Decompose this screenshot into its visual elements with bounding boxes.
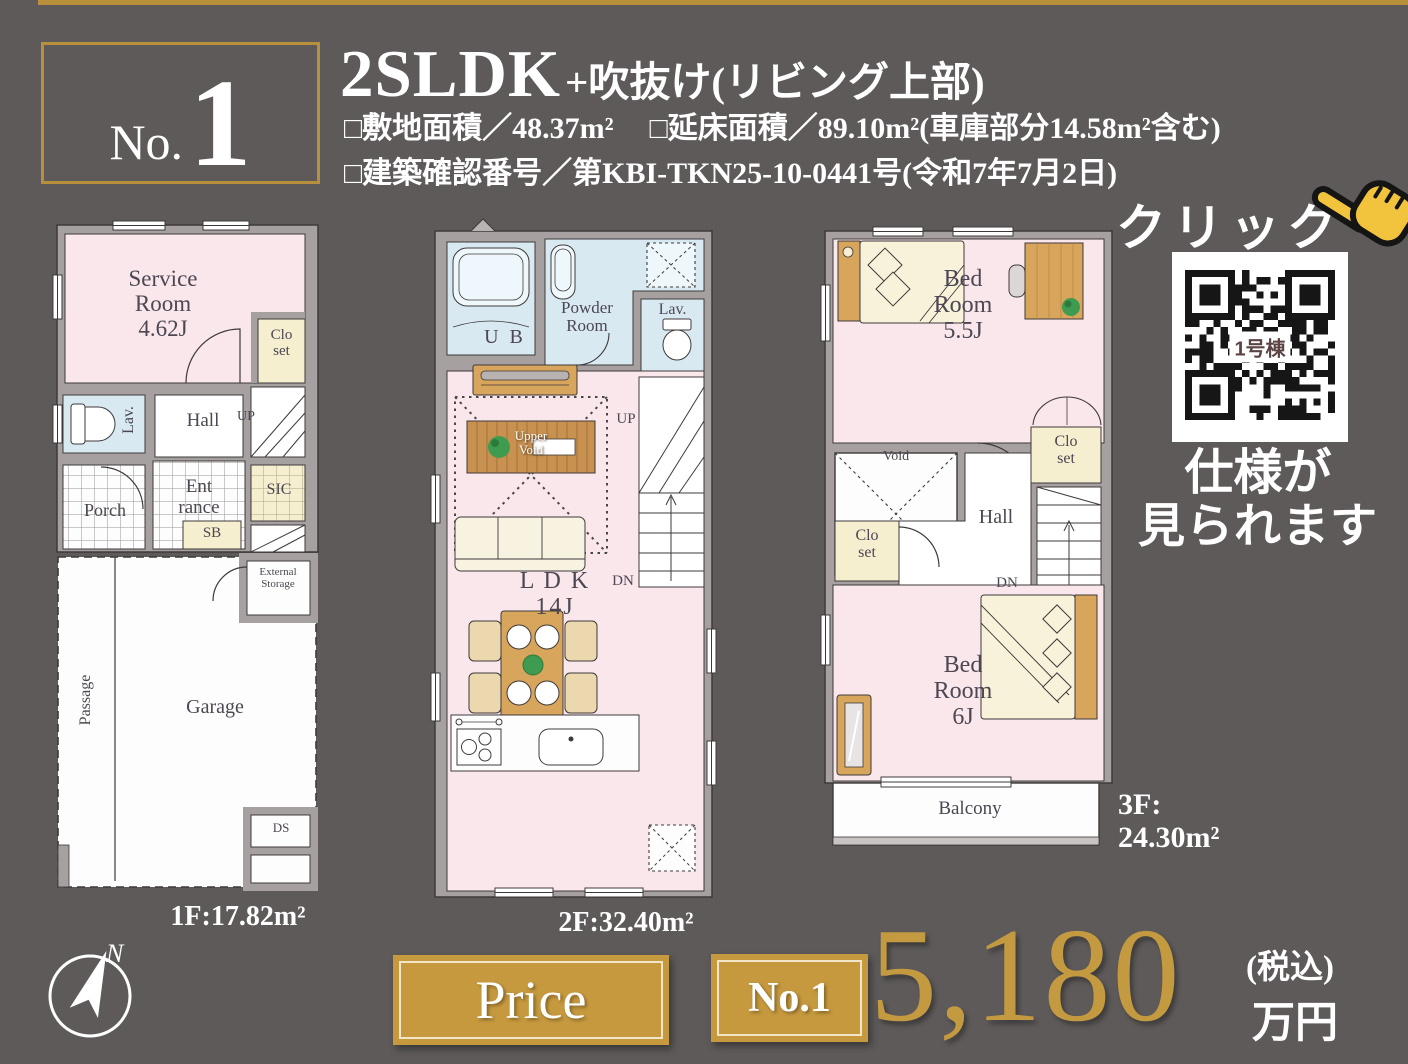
floor-plan-3f: Bed Room 5.5J Void Clo set Hall Clo set … [825, 225, 1115, 865]
roof-vent-mark [471, 219, 495, 231]
sink-basin-icon [551, 245, 575, 299]
mirror-icon [837, 695, 871, 775]
sink-icon [539, 729, 603, 765]
top-divider [38, 0, 1408, 5]
stairs-3f [1037, 487, 1101, 591]
sofa-icon [455, 517, 585, 571]
unit-number-value: 1 [189, 73, 252, 176]
site-area-label: □敷地面積／48.37m² [344, 112, 614, 145]
spec-note-line2: 見られます [1108, 500, 1408, 554]
label-closet-left: Clo set [835, 527, 899, 562]
label-sb: SB [185, 525, 239, 541]
label-lav-2f: Lav. [641, 301, 704, 318]
label-powder-room: Powder Room [547, 299, 627, 336]
price-button-label: Price [393, 955, 669, 1045]
label-passage: Passage [68, 665, 104, 735]
caption-3f: 3F: 24.30m² [1118, 788, 1219, 854]
click-label: クリック [1116, 188, 1344, 260]
unit-number-prefix: No. [109, 117, 183, 167]
spec-note-line1: 仕様が [1108, 446, 1408, 500]
label-hall-1f: Hall [175, 411, 231, 432]
stove-icon [457, 729, 501, 765]
area-spec-line: □敷地面積／48.37m²□延床面積／89.10m²(車庫部分14.58m²含む… [344, 103, 1221, 147]
label-ub: U B [460, 327, 550, 349]
label-upper-void: Upper Void [475, 429, 587, 457]
caption-2f: 2F:32.40m² [501, 907, 751, 939]
tv-board-icon [473, 365, 577, 395]
label-porch: Porch [67, 501, 143, 520]
flyer-page: No. 1 2SLDK +吹抜け(リビング上部) □敷地面積／48.37m²□延… [0, 0, 1408, 1064]
price-unit-badge-label: No.1 [711, 954, 868, 1042]
stairs-corner-1f [251, 525, 305, 552]
label-bedroom1: Bed Room 5.5J [905, 267, 1021, 345]
qr-center-label: 1号棟 [1229, 332, 1290, 363]
skylight-void-mark [647, 243, 695, 287]
tax-included-note: (税込) [1246, 940, 1334, 988]
price-unit-label: 万円 [1252, 988, 1338, 1050]
floor-plan-1f: Service Room 4.62J Clo set Lav. Hall UP … [55, 215, 330, 945]
label-dn-3f: DN [985, 575, 1029, 591]
label-dn-2f: DN [601, 573, 645, 589]
qr-code[interactable]: 1号棟 [1172, 252, 1348, 442]
label-external-storage: External Storage [245, 567, 311, 591]
plan-title: 2SLDK +吹抜け(リビング上部) [340, 36, 985, 113]
void-mark-bottom [649, 825, 695, 871]
kitchen-counter [451, 715, 639, 771]
label-lav-1f: Lav. [109, 398, 149, 442]
floor-plan-2f: U B Powder Room Lav. UP Upper Void L D K… [435, 225, 720, 945]
label-up-2f: UP [603, 411, 649, 427]
stairs-2f [639, 377, 704, 587]
unit-number-badge: No. 1 [41, 42, 320, 184]
plan-type-label: 2SLDK [340, 37, 561, 111]
compass-icon: N [36, 936, 148, 1054]
label-ldk: L D K 14J [495, 569, 615, 621]
price-amount: 5,180 [870, 908, 1182, 1042]
label-bedroom2: Bed Room 6J [911, 653, 1015, 731]
label-entrance: Ent rance [157, 477, 241, 518]
floor-area-label: □延床面積／89.10m²(車庫部分14.58m²含む) [650, 112, 1221, 145]
building-confirmation-label: □建築確認番号／第KBI-TKN25-10-0441号(令和7年7月2日) [344, 148, 1117, 192]
compass-north-label: N [105, 939, 125, 968]
label-service-room: Service Room 4.62J [83, 267, 243, 341]
price-unit-badge: No.1 [711, 954, 868, 1042]
price-button: Price [393, 955, 669, 1045]
label-ds: DS [253, 821, 309, 835]
plan-type-sub-label: +吹抜け(リビング上部) [565, 59, 985, 105]
label-sic: SIC [253, 481, 305, 498]
caption-1f: 1F:17.82m² [113, 901, 363, 933]
toilet-icon-2f [663, 319, 691, 360]
label-closet-right: Clo set [1031, 433, 1101, 468]
label-void: Void [856, 449, 936, 464]
label-up-1f: UP [225, 409, 267, 424]
label-hall-3f: Hall [963, 507, 1029, 529]
label-garage: Garage [155, 697, 275, 719]
spec-note: 仕様が 見られます [1108, 446, 1408, 554]
label-balcony: Balcony [895, 799, 1045, 820]
label-closet-1f: Clo set [258, 327, 305, 359]
